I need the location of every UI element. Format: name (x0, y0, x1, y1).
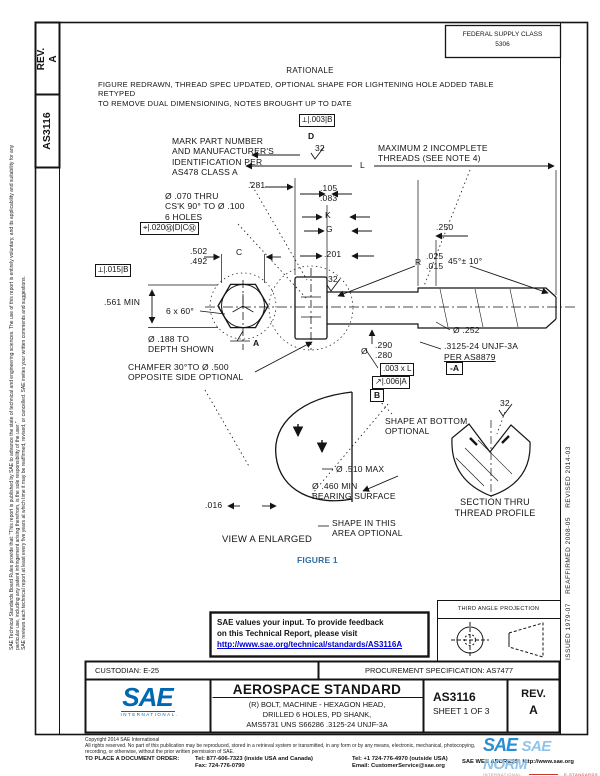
watermark-sub: INTERNATIONAL. (483, 772, 523, 776)
revision-history: ISSUED 1979-07 REAFFIRMED 2008-05 REVISE… (565, 340, 572, 660)
order-label: TO PLACE A DOCUMENT ORDER: (85, 756, 179, 762)
fcf-straightness: .003 x L (380, 363, 414, 376)
rev-sidebar-box: REV. A (36, 29, 60, 89)
fcf-perpendicularity-top: ⟂|.003|B (299, 114, 335, 127)
dim-201: .201 (324, 249, 341, 259)
dim-188-depth: Ø .188 TO DEPTH SHOWN (148, 334, 214, 355)
custodian-cell: CUSTODIAN: E-25 (95, 666, 159, 675)
dim-K: K (325, 210, 331, 220)
dim-460-bearing: Ø .460 MIN BEARING SURFACE (312, 481, 396, 502)
feedback-box: SAE values your input. To provide feedba… (217, 617, 423, 651)
dim-105-083: .105 .083 (320, 183, 337, 204)
left-legal-text-1: SAE Technical Standards Board Rules prov… (9, 130, 22, 650)
document-title: (R) BOLT, MACHINE - HEXAGON HEAD, DRILLE… (211, 700, 423, 730)
feedback-line-1: SAE values your input. To provide feedba… (217, 617, 423, 628)
fax-number: Fax: 724-776-0790 (195, 763, 245, 769)
hole-note: Ø .070 THRU CS'K 90° TO Ø .100 6 HOLES (165, 191, 245, 222)
doc-number-cell: AS3116 (433, 690, 476, 704)
rev-cell-value: A (507, 703, 560, 717)
chamfer-note: CHAMFER 30°TO Ø .500 OPPOSITE SIDE OPTIO… (128, 362, 243, 383)
watermark-brand: SAE (483, 735, 517, 755)
dim-R: R (415, 257, 421, 267)
tel-outside: Tel: +1 724-776-4970 (outside USA) (352, 756, 448, 762)
dim-L: L (360, 160, 365, 170)
thread-spec: .3125-24 UNJF-3A (444, 341, 518, 351)
projection-title: THIRD ANGLE PROJECTION (437, 606, 560, 612)
dim-250: .250 (436, 222, 453, 232)
rationale-title: RATIONALE (60, 66, 560, 75)
watermark-accent: E-STANDARDS (564, 772, 598, 776)
drawing-sheet: REV. A AS3116 SAE Technical Standards Bo… (0, 0, 600, 776)
surface-finish-top: 32 (315, 143, 325, 153)
email-address: Email: CustomerService@sae.org (352, 763, 445, 769)
surface-finish-section: 32 (500, 398, 510, 408)
section-title: SECTION THRU THREAD PROFILE (440, 497, 550, 519)
shape-bottom-note: SHAPE AT BOTTOM OPTIONAL (385, 416, 467, 437)
dim-290-dia-symbol: Ø (361, 346, 368, 356)
dim-290-280: .290 .280 (375, 340, 392, 361)
max-threads-note: MAXIMUM 2 INCOMPLETE THREADS (SEE NOTE 4… (378, 143, 488, 164)
standard-type-title: AEROSPACE STANDARD (211, 682, 423, 697)
procurement-cell: PROCUREMENT SPECIFICATION: AS7477 (318, 666, 560, 675)
surface-finish-head: 32 (328, 274, 338, 284)
dim-561-min: .561 MIN (104, 297, 140, 307)
view-a-arrow-label: A (253, 338, 259, 348)
sae-logo: SAE INTERNATIONAL. (85, 684, 210, 717)
sae-norm-watermark: SAE SAE NORM INTERNATIONAL. E-STANDARDS (483, 735, 598, 776)
rev-label: REV. (36, 47, 47, 69)
left-legal-text-2: SAE reviews each technical report at lea… (21, 130, 27, 650)
dim-R-values: .025 .015 (426, 251, 443, 272)
fcf-runout: ↗|.006|A (372, 376, 410, 389)
dim-252: Ø .252 (453, 325, 480, 335)
doc-number-sidebar: AS3116 (41, 101, 55, 161)
federal-supply-label: FEDERAL SUPPLY CLASS (463, 31, 543, 38)
sheet-cell: SHEET 1 OF 3 (433, 706, 490, 716)
mark-part-note: MARK PART NUMBER AND MANUFACTURER'S IDEN… (172, 136, 274, 177)
datum-b-flag: B (370, 389, 384, 402)
figure-caption: FIGURE 1 (297, 555, 338, 565)
federal-supply-value: 5306 (495, 41, 509, 48)
thread-spec-per: PER AS8879 (444, 352, 496, 362)
datum-a-flag: -A (446, 362, 463, 375)
dim-6x60: 6 x 60° (166, 306, 194, 316)
dim-510-max: Ø .510 MAX (336, 464, 384, 474)
fcf-perpendicularity-015: ⟂|.015|B (95, 264, 131, 277)
sae-logo-sub: INTERNATIONAL. (121, 711, 175, 717)
feedback-line-2: on this Technical Report, please visit (217, 628, 423, 639)
dim-016: .016 (205, 500, 222, 510)
dim-45-deg: 45°± 10° (448, 256, 482, 266)
dim-281: .281 (248, 180, 265, 190)
rev-cell-label: REV. (507, 688, 560, 700)
sae-logo-text: SAE (85, 684, 210, 710)
rationale-text: FIGURE REDRAWN, THREAD SPEC UPDATED, OPT… (98, 80, 528, 108)
tel-inside: Tel: 877-606-7323 (inside USA and Canada… (195, 756, 313, 762)
dim-G: G (326, 224, 333, 234)
rev-value: A (47, 55, 58, 62)
feedback-link[interactable]: http://www.sae.org/technical/standards/A… (217, 640, 402, 649)
federal-supply-class-box: FEDERAL SUPPLY CLASS 5306 (445, 30, 560, 50)
datum-d-label: D (308, 131, 314, 141)
dim-C: C (236, 247, 242, 257)
dim-502-492: .502 .492 (190, 246, 207, 267)
view-a-title: VIEW A ENLARGED (222, 534, 312, 546)
shape-area-note: SHAPE IN THIS AREA OPTIONAL (332, 518, 403, 539)
fcf-position: ⌖|.020Ⓜ|D|CⓂ (140, 222, 199, 235)
